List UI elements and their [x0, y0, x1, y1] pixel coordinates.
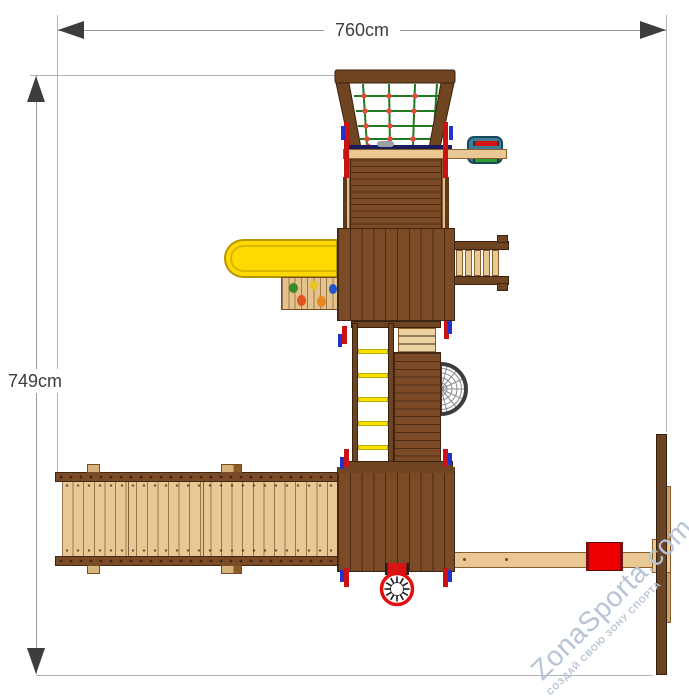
mb-rung	[358, 445, 388, 450]
bridge-section-joint	[128, 482, 129, 556]
dimension-height-arrow-up	[27, 76, 45, 102]
climbing-hold-orange	[317, 296, 326, 307]
extension-line-left-edge	[57, 15, 58, 473]
upper-deck-leg-left	[343, 177, 347, 229]
dimension-height-arrow-down	[27, 648, 45, 674]
stairs	[398, 328, 436, 354]
support-post-red	[344, 568, 349, 587]
upper-deck-leg-right	[445, 177, 449, 229]
mb-rung	[358, 421, 388, 426]
climbing-hold-yellow	[310, 281, 318, 290]
wheel-mount-left	[385, 563, 388, 575]
support-bracket-blue	[341, 126, 345, 140]
access-ladder-cap-top	[497, 235, 508, 243]
climbing-wall	[281, 277, 338, 310]
extension-line-top-edge	[30, 75, 335, 76]
beam-clip	[377, 141, 394, 147]
mb-rung	[358, 373, 388, 378]
bridge-rail-top	[55, 472, 338, 482]
lad-rung	[474, 250, 481, 276]
bridge-cleat	[87, 464, 100, 473]
support-post-red	[344, 449, 349, 467]
net-frame	[335, 70, 455, 148]
bridge-cleat	[87, 565, 100, 574]
bridge-nail-row	[64, 549, 336, 552]
playset-top-view-diagram: 760cm 749cm	[0, 0, 689, 700]
lad-rung	[483, 250, 490, 276]
bridge-deck	[62, 482, 338, 556]
support-bracket-blue	[338, 334, 342, 347]
support-bracket-blue	[340, 457, 344, 469]
mb-rung	[358, 397, 388, 402]
steering-wheel	[377, 563, 417, 607]
beam-bolt	[505, 558, 508, 561]
support-bracket-blue	[448, 570, 452, 582]
mb-rung	[358, 349, 388, 354]
climbing-hold-red	[297, 295, 306, 306]
dimension-width-arrow-left	[58, 21, 84, 39]
upper-tower-roof	[337, 228, 455, 321]
lower-tower-roof	[337, 467, 455, 572]
slide-channel	[230, 245, 336, 272]
climbing-hold-green	[289, 283, 298, 293]
upper-deck	[350, 152, 442, 229]
swing-seat	[586, 542, 623, 571]
bridge-nail-row	[64, 484, 336, 487]
bridge-cleat	[221, 464, 242, 473]
bucket-seat-red-bar	[473, 141, 499, 146]
support-bracket-blue	[448, 453, 452, 465]
bridge-section-joint	[203, 482, 204, 556]
support-bracket-blue	[340, 570, 344, 582]
support-post-red	[443, 122, 448, 178]
access-ladder-cap-bottom	[497, 283, 508, 291]
dimension-height-label: 749cm	[3, 369, 67, 393]
lad-rung	[465, 250, 472, 276]
monkey-bars-rail-left	[352, 323, 358, 464]
slide	[224, 239, 338, 278]
support-bracket-blue	[449, 126, 453, 140]
bridge-cleat	[221, 565, 242, 574]
lad-rung	[456, 250, 463, 276]
top-crossbeam	[343, 149, 507, 159]
support-bracket-blue	[448, 321, 452, 334]
dimension-width-label: 760cm	[324, 18, 400, 42]
dimension-width-arrow-right	[640, 21, 666, 39]
wheel-mount-right	[407, 563, 410, 575]
beam-bolt	[463, 558, 466, 561]
climbing-hold-blue	[329, 284, 337, 294]
extension-line-right-edge	[666, 15, 667, 432]
deck-edge-beam-upper	[351, 321, 441, 328]
support-post-red	[342, 326, 347, 344]
lad-rung	[492, 250, 499, 276]
walkway	[394, 352, 441, 463]
